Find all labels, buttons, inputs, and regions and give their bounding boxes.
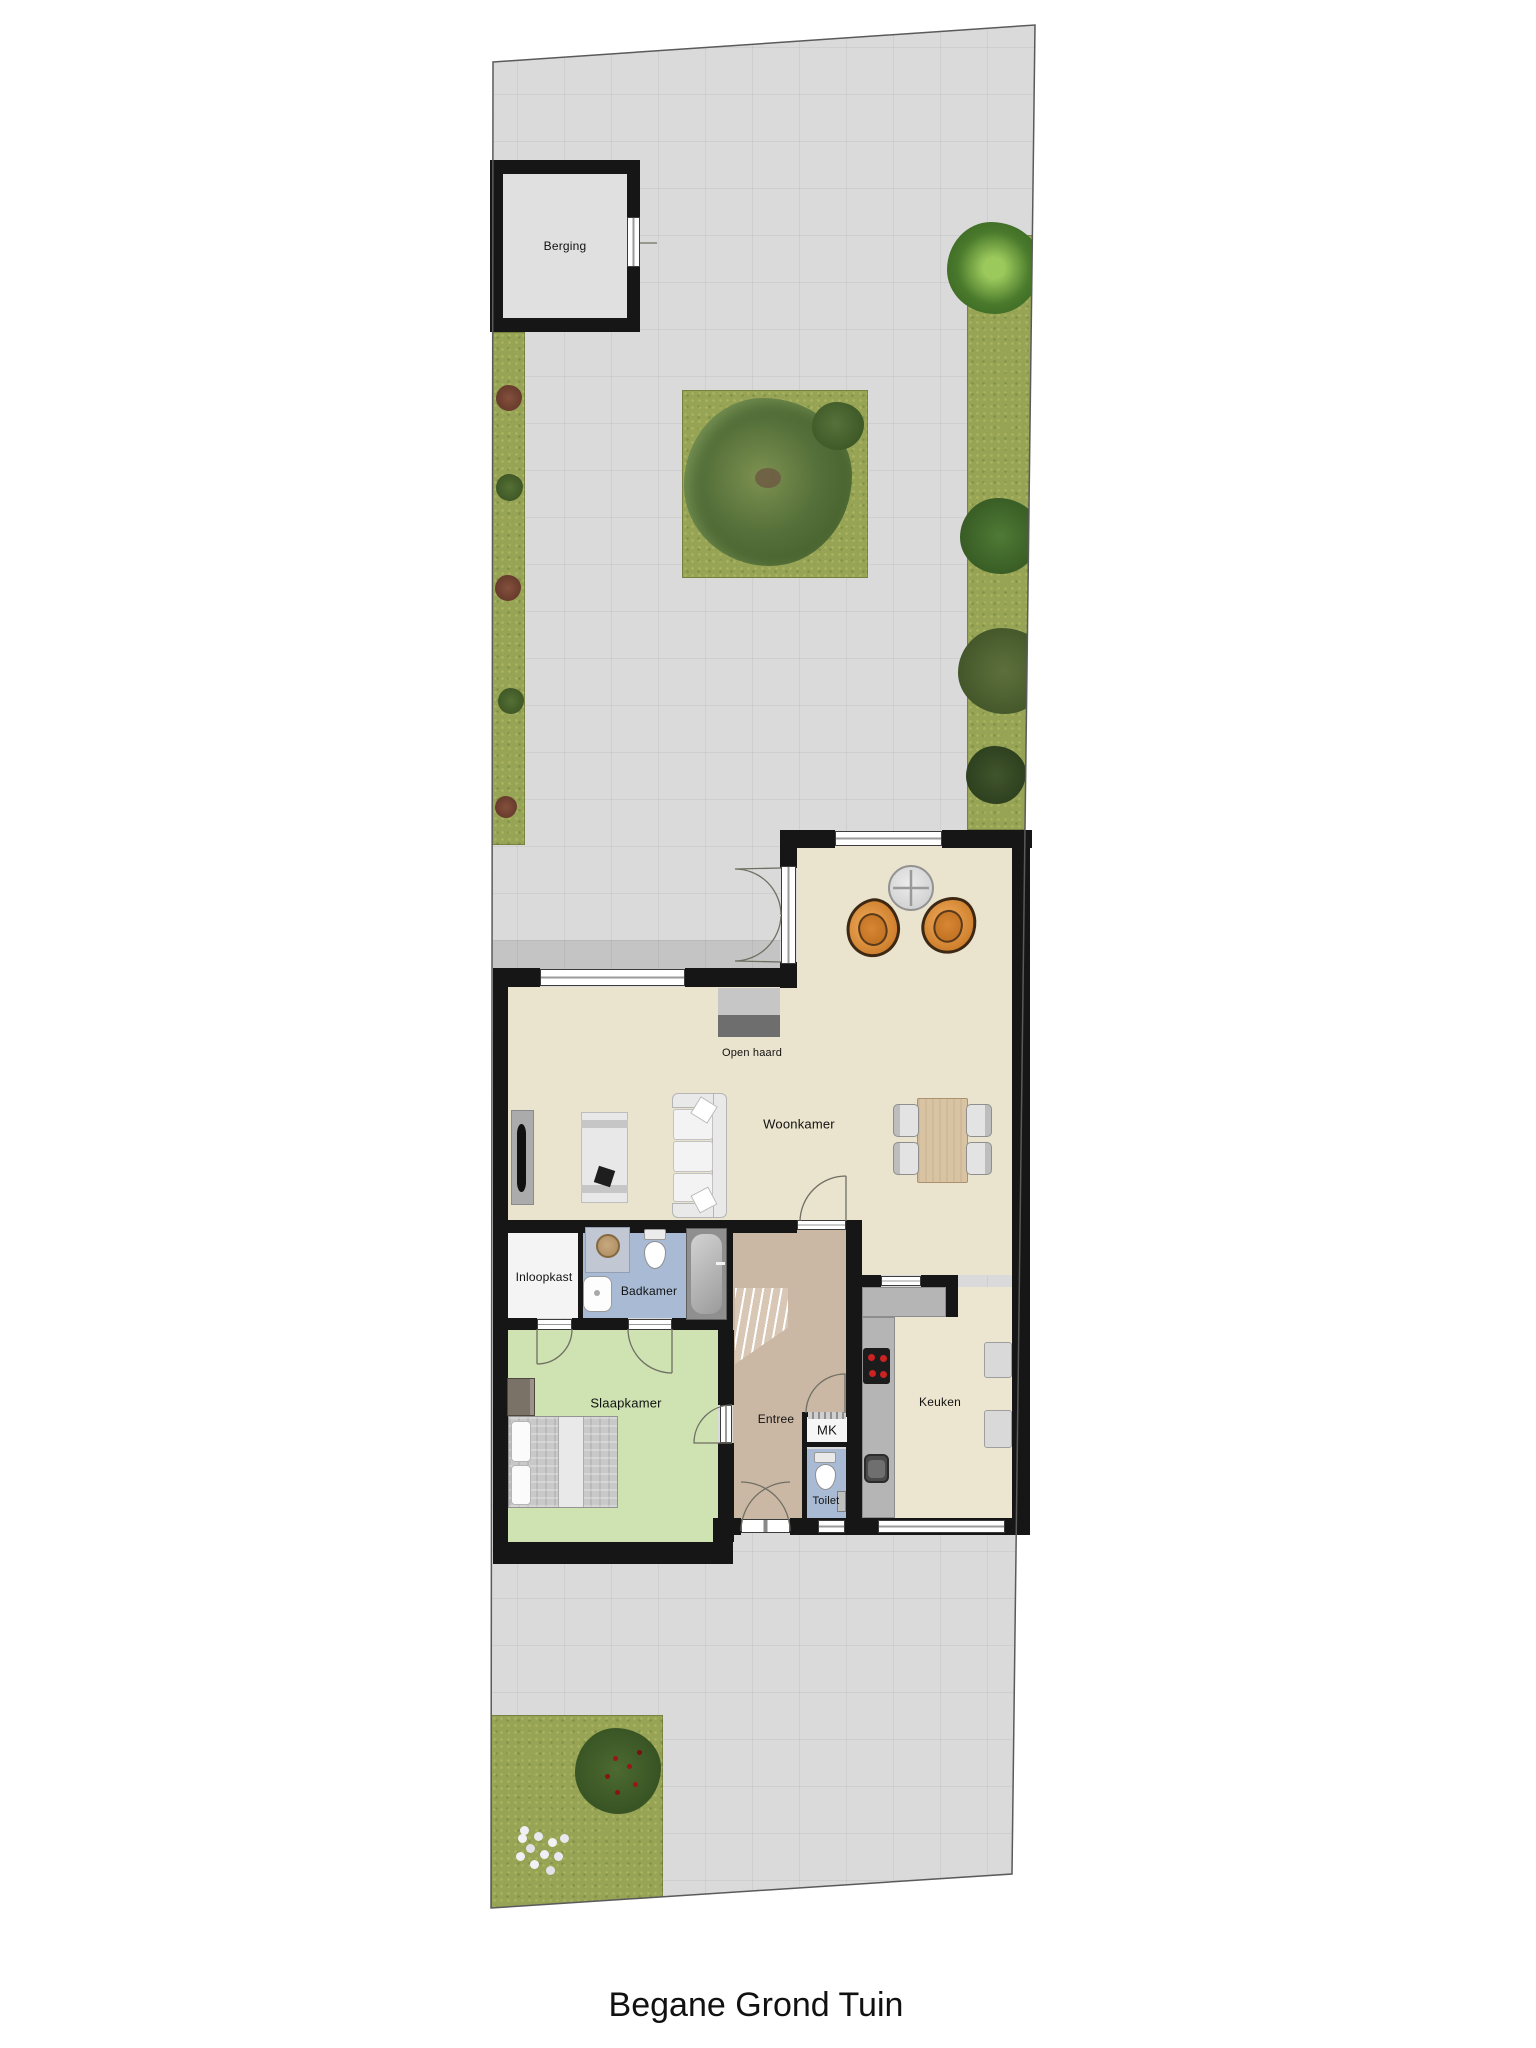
berging-wall-left [490,160,503,332]
wall-toilet-west [802,1447,807,1518]
bed-sheet-band [558,1417,584,1507]
bathroom-toilet-tank [644,1229,666,1240]
dining-chair-3 [966,1104,992,1137]
front-door-band [741,1519,790,1533]
berging-wall-right-upper [627,160,640,217]
window-serre-top [835,831,942,846]
wall-slaapkamer-north-1 [508,1318,537,1330]
serre-wall-west-lower [780,962,797,988]
kitchen-sink-basin [868,1460,885,1478]
open-haard-label: Open haard [722,1047,782,1059]
wall-left-outer [493,968,508,1564]
window-woonkamer-top [540,969,685,986]
wall-entree-south-left [733,1518,741,1535]
fireplace-top [718,988,780,1015]
wall-slaapkamer-east-upper [718,1330,734,1405]
fireplace-front [718,1015,780,1037]
toilet-tank [814,1452,836,1463]
dining-chair-4 [966,1142,992,1175]
plan-title: Begane Grond Tuin [0,1986,1512,2025]
berging-label: Berging [544,239,587,253]
bathtub-faucet [716,1262,725,1265]
bush-right-2 [958,628,1050,714]
slaapkamer-label: Slaapkamer [590,1396,661,1411]
flower-cluster [520,1826,529,1835]
coffee-table-band-1 [581,1120,628,1128]
large-tree-trunk [755,468,781,488]
keuken-label: Keuken [919,1395,961,1409]
bush-left-5 [495,796,517,818]
berging-wall-top [490,160,640,174]
sofa-cushion-2 [673,1141,713,1172]
mk-label: MK [817,1423,837,1438]
wall-badkamer-entree [727,1220,733,1330]
french-doors-band [781,866,796,964]
wall-jog-connector [713,1518,733,1564]
kitchen-counter-top [862,1287,946,1317]
wall-right-outer [1012,830,1030,1535]
wall-keuken-north-left [862,1275,881,1287]
wall-entree-east [846,1220,862,1518]
berry-dots [613,1756,618,1761]
floor-plan-page: Berging Toilet MK [0,0,1536,2048]
bed-pillow-2 [511,1465,531,1505]
armchair-left-seat [855,910,892,948]
wall-top-left [493,968,540,987]
woonkamer-label: Woonkamer [763,1117,835,1132]
dining-chair-2 [893,1142,919,1175]
wall-slaapkamer-south [493,1542,733,1564]
round-table [888,865,934,911]
inloopkast-label: Inloopkast [516,1270,573,1284]
kitchen-cabinet-2 [984,1410,1012,1448]
entree-label: Entree [758,1412,795,1426]
badkamer-label: Badkamer [621,1284,677,1298]
wall-keuken-stub [946,1287,958,1317]
berging-wall-bottom [490,318,640,332]
dining-table [917,1098,968,1183]
kitchen-cabinet-1 [984,1342,1012,1378]
wardrobe-front [530,1379,534,1415]
wall-slaapkamer-north-2 [572,1318,628,1330]
door-inloopkast-band [537,1319,572,1330]
cooktop-burners [868,1354,875,1361]
bathtub-inner [691,1234,722,1314]
bed-pillow-1 [511,1421,531,1462]
dining-chair-1 [893,1104,919,1137]
cooktop [863,1348,890,1384]
berging-wall-right-lower [627,267,640,332]
door-badkamer-band [628,1319,672,1330]
window-toilet-south [818,1520,845,1533]
armchair-right-seat [930,907,967,946]
door-woonkamer-entree [797,1220,846,1230]
shower-drain [594,1290,600,1296]
entree-floor-lower [733,1415,802,1520]
terrace-shadow-strip [493,940,780,971]
wall-keuken-north-right [921,1275,958,1287]
window-keuken-pass [881,1276,921,1286]
window-keuken-south [878,1520,1005,1533]
bathroom-basin [596,1234,620,1258]
door-slaapkamer-band [720,1405,732,1443]
coffee-table-band-2 [581,1185,628,1193]
toilet-label: Toilet [813,1495,840,1507]
tv-screen [517,1124,526,1192]
serre-wall-top-left [780,830,835,848]
berging-door [627,217,640,267]
mk-door-hatch [808,1412,846,1419]
